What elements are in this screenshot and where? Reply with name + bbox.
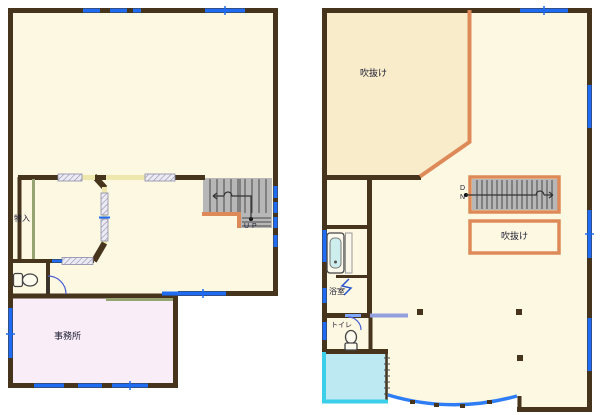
floorplan-canvas: 物入 事務所 UP 吹抜け 吹抜け 浴室 トイレ D N xyxy=(0,0,600,415)
f1-toilet-bowl xyxy=(23,274,38,286)
floor1-plan xyxy=(6,6,278,390)
floorplan-drawing xyxy=(0,0,600,415)
f1-bay-hatch-2 xyxy=(101,219,108,241)
f1-office-fill xyxy=(11,296,177,388)
f2-terrace-fill xyxy=(322,352,388,403)
room-label-atrium-void: 吹抜け xyxy=(501,231,528,241)
f1-toilet-tank xyxy=(14,274,23,287)
room-label-atrium-large: 吹抜け xyxy=(360,68,387,78)
room-label-storage: 物入 xyxy=(14,214,30,224)
f1-floor-fill xyxy=(8,8,278,296)
f2-curve-post-3 xyxy=(460,404,465,408)
f2-curve-post-1 xyxy=(410,400,415,404)
f2-curve-post-2 xyxy=(434,403,439,407)
room-label-office: 事務所 xyxy=(54,331,81,341)
f2-atrium-fill xyxy=(325,10,470,177)
f1-mid-hatch-2 xyxy=(145,174,175,181)
f2-curve-post-4 xyxy=(487,400,492,404)
stairs-up-label: UP xyxy=(244,222,260,232)
f2-bath-door-strip xyxy=(346,233,353,273)
stairs-down-label: D N xyxy=(458,184,467,202)
room-label-bath: 浴室 xyxy=(329,287,345,297)
f2-toilet-bowl xyxy=(346,331,357,344)
f2-bathtub-drain xyxy=(334,261,337,264)
f2-pillar-1 xyxy=(417,309,423,315)
room-label-toilet: トイレ xyxy=(331,321,352,331)
f1-bay-hatch-1 xyxy=(101,193,108,215)
f2-toilet-tank xyxy=(345,343,357,350)
f2-pillar-3 xyxy=(517,355,523,361)
floor2-plan xyxy=(322,6,594,412)
f1-mid-hatch-1 xyxy=(58,174,82,181)
f1-bottom-hatch xyxy=(62,258,93,265)
f2-pillar-2 xyxy=(516,309,522,315)
